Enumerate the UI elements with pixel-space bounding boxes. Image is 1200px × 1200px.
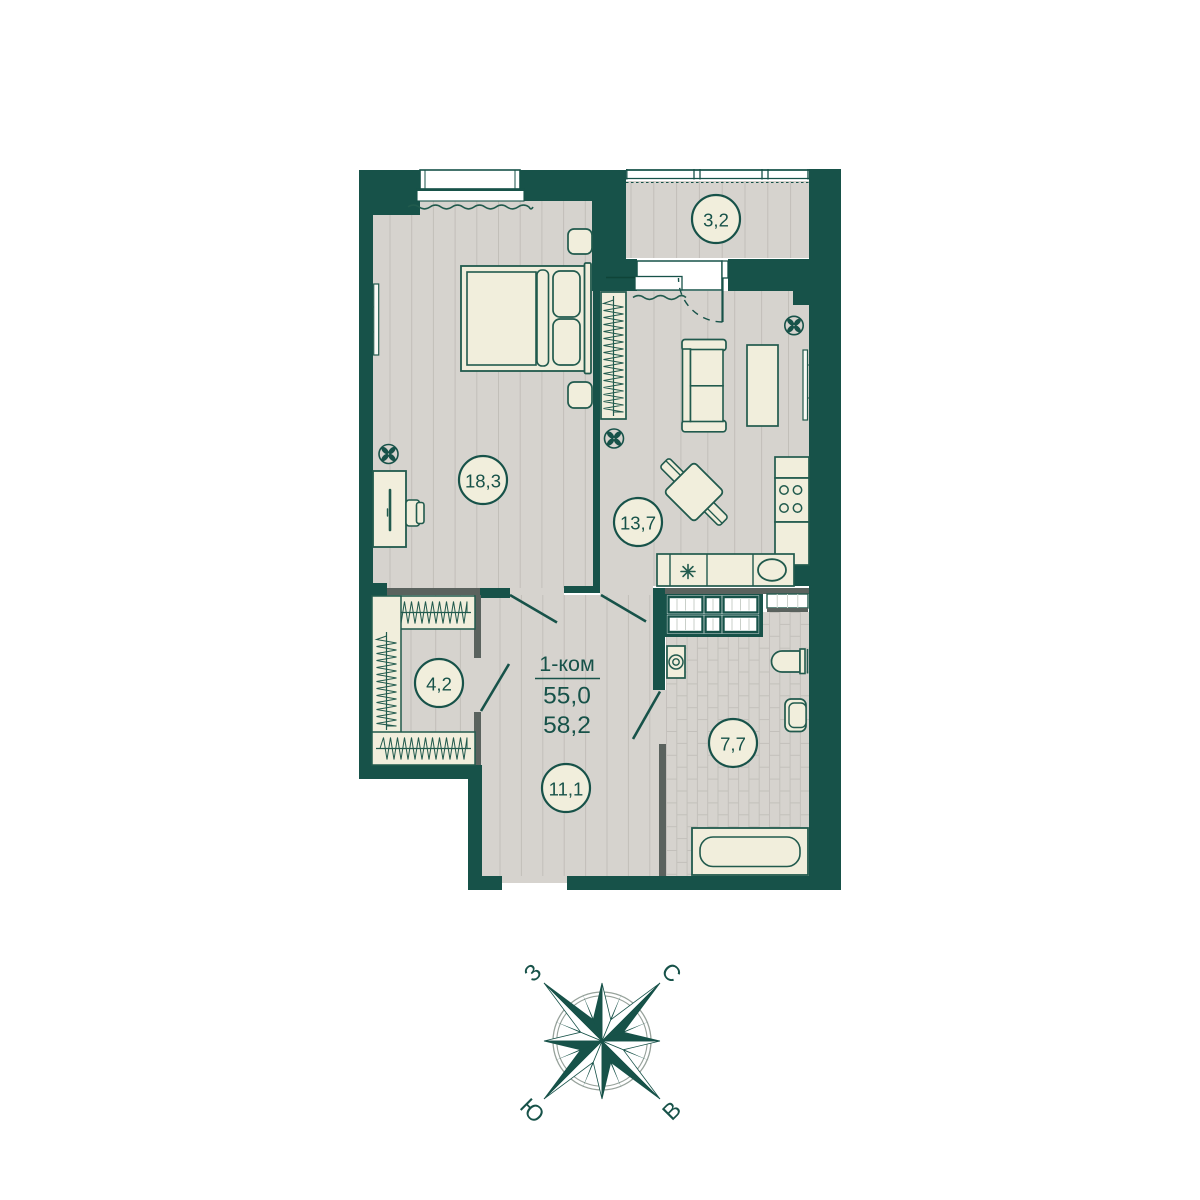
svg-text:55,0: 55,0 bbox=[543, 683, 591, 710]
svg-text:4,2: 4,2 bbox=[426, 674, 452, 695]
svg-text:3,2: 3,2 bbox=[703, 210, 729, 231]
svg-text:1-ком: 1-ком bbox=[539, 652, 595, 676]
svg-text:11,1: 11,1 bbox=[549, 779, 584, 800]
svg-text:13,7: 13,7 bbox=[620, 513, 656, 534]
svg-text:7,7: 7,7 bbox=[720, 734, 746, 755]
svg-text:58,2: 58,2 bbox=[543, 712, 591, 739]
svg-text:18,3: 18,3 bbox=[465, 471, 501, 492]
